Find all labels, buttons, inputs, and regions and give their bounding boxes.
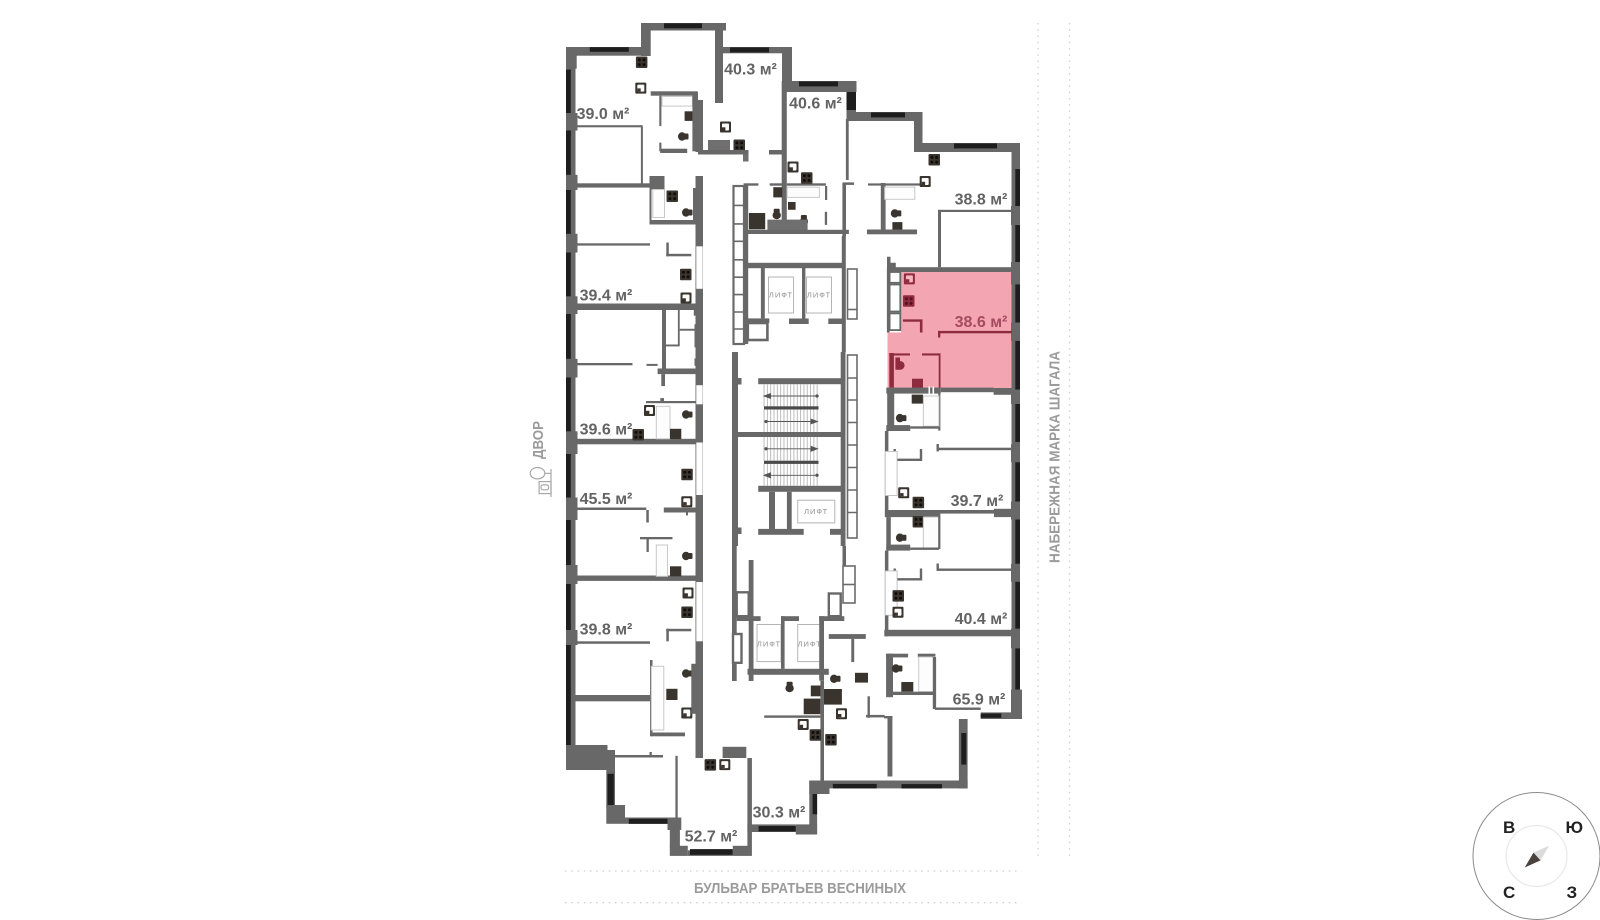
- svg-text:С: С: [1503, 883, 1515, 902]
- svg-text:ЛИФТ: ЛИФТ: [757, 640, 781, 649]
- svg-text:40.4 м²: 40.4 м²: [955, 611, 1008, 628]
- svg-text:ЛИФТ: ЛИФТ: [798, 640, 822, 649]
- svg-text:45.5 м²: 45.5 м²: [580, 491, 633, 508]
- svg-text:39.8 м²: 39.8 м²: [580, 622, 633, 639]
- svg-text:38.6 м²: 38.6 м²: [955, 314, 1008, 331]
- svg-text:БУЛЬВАР БРАТЬЕВ ВЕСНИНЫХ: БУЛЬВАР БРАТЬЕВ ВЕСНИНЫХ: [694, 880, 906, 897]
- svg-text:ДВОР: ДВОР: [530, 421, 547, 459]
- svg-text:Ю: Ю: [1566, 818, 1584, 837]
- svg-text:40.3 м²: 40.3 м²: [724, 62, 777, 79]
- svg-text:39.0 м²: 39.0 м²: [577, 106, 630, 123]
- svg-text:ЛИФТ: ЛИФТ: [804, 507, 828, 516]
- svg-text:38.8 м²: 38.8 м²: [955, 192, 1008, 209]
- svg-text:ЛИФТ: ЛИФТ: [807, 291, 831, 300]
- svg-text:39.6 м²: 39.6 м²: [580, 422, 633, 439]
- svg-text:39.7 м²: 39.7 м²: [951, 493, 1004, 510]
- svg-text:НАБЕРЕЖНАЯ МАРКА ШАГАЛА: НАБЕРЕЖНАЯ МАРКА ШАГАЛА: [1047, 351, 1064, 563]
- svg-text:З: З: [1567, 883, 1578, 902]
- svg-text:52.7 м²: 52.7 м²: [685, 829, 738, 846]
- svg-text:40.6 м²: 40.6 м²: [789, 96, 842, 113]
- svg-text:В: В: [1503, 818, 1515, 837]
- svg-text:30.3 м²: 30.3 м²: [753, 805, 806, 822]
- svg-text:ЛИФТ: ЛИФТ: [769, 291, 793, 300]
- svg-text:39.4 м²: 39.4 м²: [580, 288, 633, 305]
- svg-text:65.9 м²: 65.9 м²: [953, 692, 1006, 709]
